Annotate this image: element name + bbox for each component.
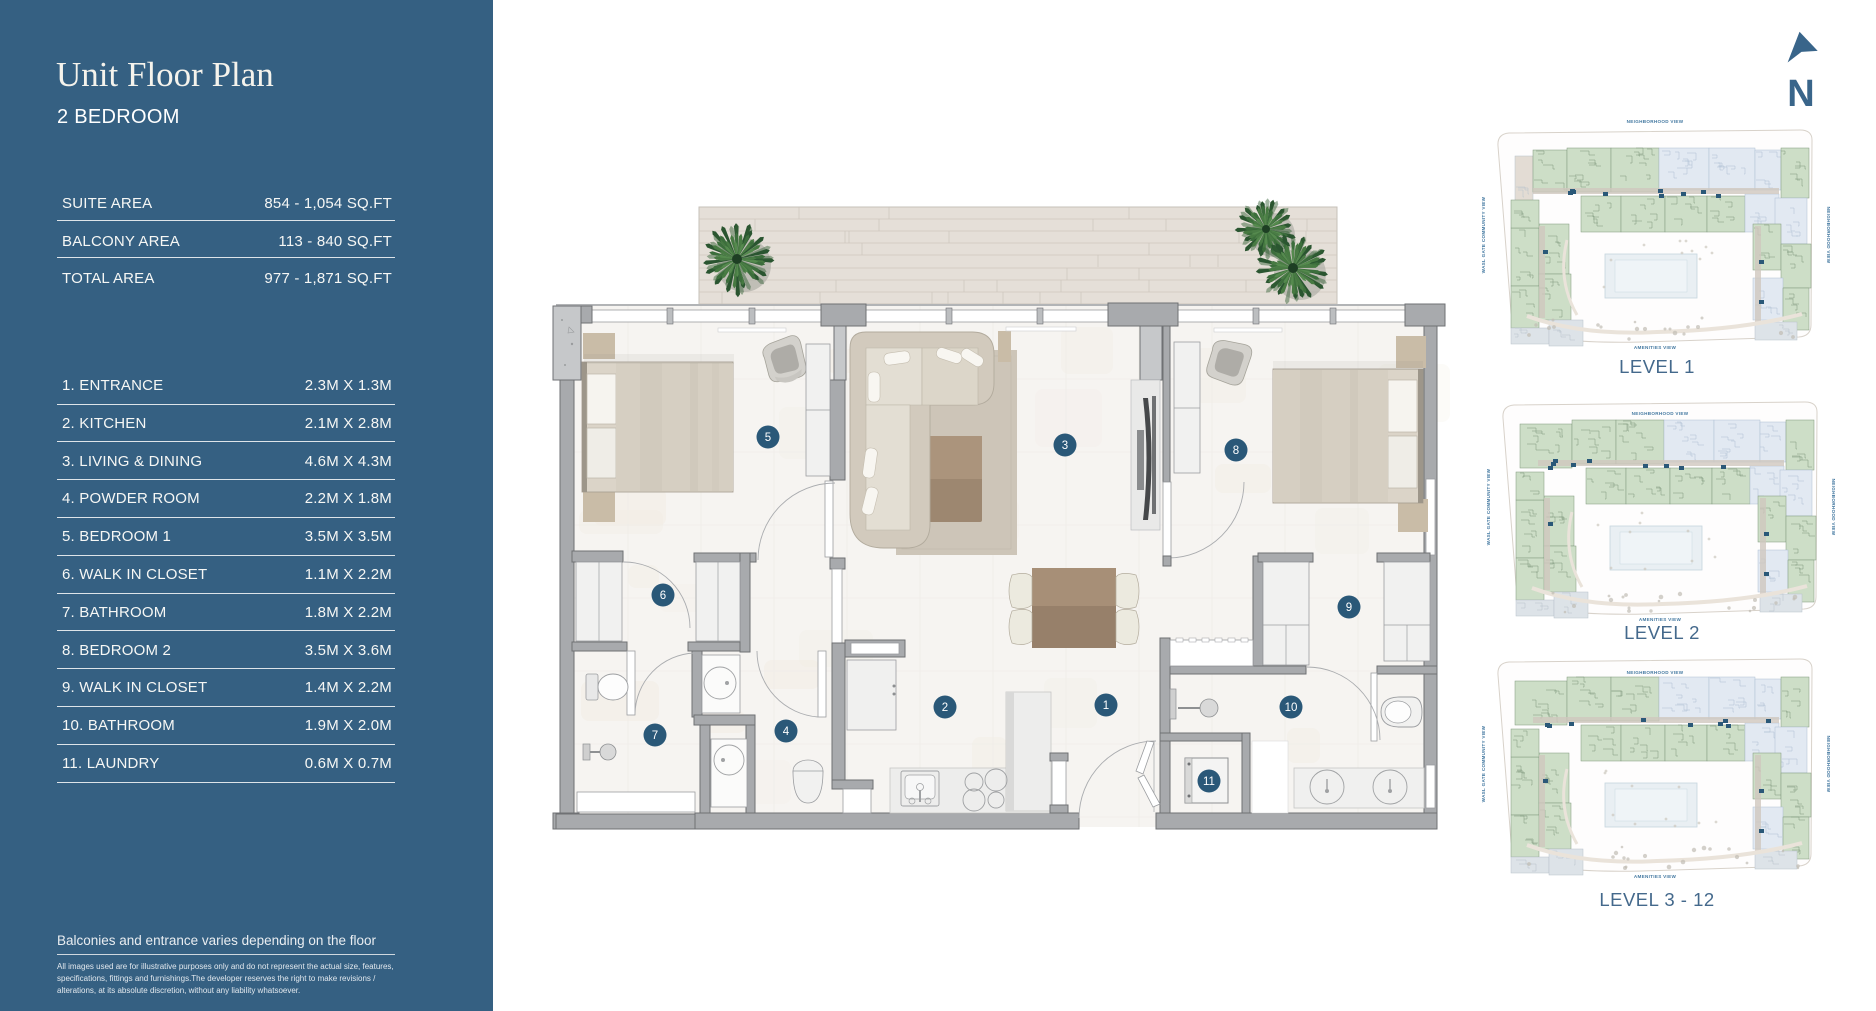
svg-text:NEIGHBORHOOD VIEW: NEIGHBORHOOD VIEW [1632, 411, 1689, 416]
svg-text:1: 1 [1103, 700, 1109, 712]
svg-text:9: 9 [1346, 602, 1352, 614]
svg-text:NEIGHBORHOOD VIEW: NEIGHBORHOOD VIEW [1826, 736, 1831, 793]
svg-text:8: 8 [1233, 445, 1239, 457]
svg-text:2: 2 [942, 702, 948, 714]
svg-text:10: 10 [1285, 702, 1298, 714]
svg-text:7: 7 [652, 730, 658, 742]
svg-text:LEVEL 2: LEVEL 2 [1624, 622, 1700, 643]
svg-text:NEIGHBORHOOD VIEW: NEIGHBORHOOD VIEW [1627, 670, 1684, 675]
svg-text:WASL GATE COMMUNITY VIEW: WASL GATE COMMUNITY VIEW [1481, 725, 1486, 802]
svg-text:11: 11 [1203, 776, 1215, 788]
svg-text:NEIGHBORHOOD VIEW: NEIGHBORHOOD VIEW [1831, 479, 1836, 536]
svg-text:5: 5 [765, 432, 771, 444]
svg-text:4: 4 [783, 726, 790, 738]
svg-text:LEVEL 1: LEVEL 1 [1619, 356, 1695, 377]
svg-text:NEIGHBORHOOD VIEW: NEIGHBORHOOD VIEW [1826, 207, 1831, 264]
svg-text:N: N [1787, 73, 1814, 115]
svg-text:NEIGHBORHOOD VIEW: NEIGHBORHOOD VIEW [1627, 119, 1684, 124]
svg-text:AMENITIES VIEW: AMENITIES VIEW [1634, 874, 1677, 879]
svg-text:3: 3 [1062, 440, 1068, 452]
svg-text:WASL GATE COMMUNITY VIEW: WASL GATE COMMUNITY VIEW [1486, 468, 1491, 545]
svg-text:WASL GATE COMMUNITY VIEW: WASL GATE COMMUNITY VIEW [1481, 196, 1486, 273]
svg-text:AMENITIES VIEW: AMENITIES VIEW [1634, 345, 1677, 350]
svg-text:LEVEL 3 - 12: LEVEL 3 - 12 [1599, 889, 1714, 910]
svg-text:6: 6 [660, 590, 666, 602]
